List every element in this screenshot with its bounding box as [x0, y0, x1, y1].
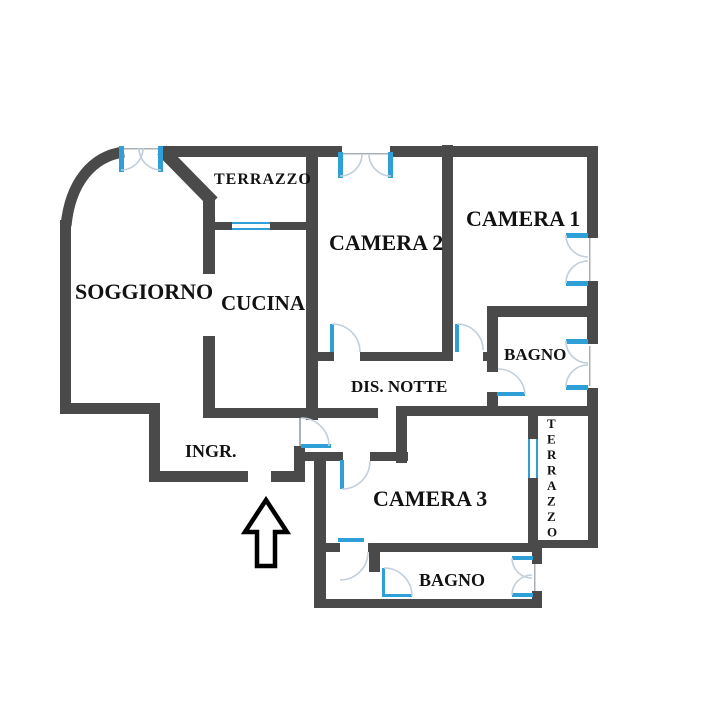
door-ingresso	[299, 418, 331, 448]
floorplan-canvas: TERRAZZO SOGGIORNO CUCINA CAMERA 2 CAMER…	[0, 0, 724, 709]
door-bagno2-inner	[382, 568, 412, 597]
room-label-cucina: CUCINA	[221, 291, 306, 315]
room-label-bagno-2: BAGNO	[419, 570, 485, 590]
door-camera3-bagno2	[338, 538, 368, 580]
french-door-soggiorno	[119, 146, 163, 172]
french-door-camera2	[338, 152, 393, 178]
room-label-soggiorno: SOGGIORNO	[75, 279, 213, 304]
door-camera1	[455, 324, 483, 352]
entrance-arrow-icon	[245, 500, 287, 566]
room-label-camera-1: CAMERA 1	[466, 206, 580, 231]
room-label-camera-3: CAMERA 3	[373, 486, 487, 511]
door-camera3	[340, 460, 370, 489]
door-camera2	[330, 324, 360, 352]
door-bagno1	[497, 369, 525, 396]
french-door-bagno1	[566, 339, 591, 390]
floorplan-drawing: TERRAZZO SOGGIORNO CUCINA CAMERA 2 CAMER…	[0, 0, 724, 709]
window-terrazzo-cucina	[232, 222, 270, 230]
room-label-dis-notte: DIS. NOTTE	[351, 377, 447, 396]
french-door-camera1	[566, 233, 591, 286]
room-label-terrazzo-right: TERRAZZO	[547, 416, 557, 540]
window-camera3-terrazzo	[528, 439, 538, 478]
room-label-bagno-1: BAGNO	[504, 345, 566, 364]
room-label-terrazzo-top: TERRAZZO	[214, 171, 312, 188]
french-door-bagno2	[512, 556, 536, 597]
room-label-ingresso: INGR.	[185, 441, 237, 461]
room-label-camera-2: CAMERA 2	[329, 230, 443, 255]
